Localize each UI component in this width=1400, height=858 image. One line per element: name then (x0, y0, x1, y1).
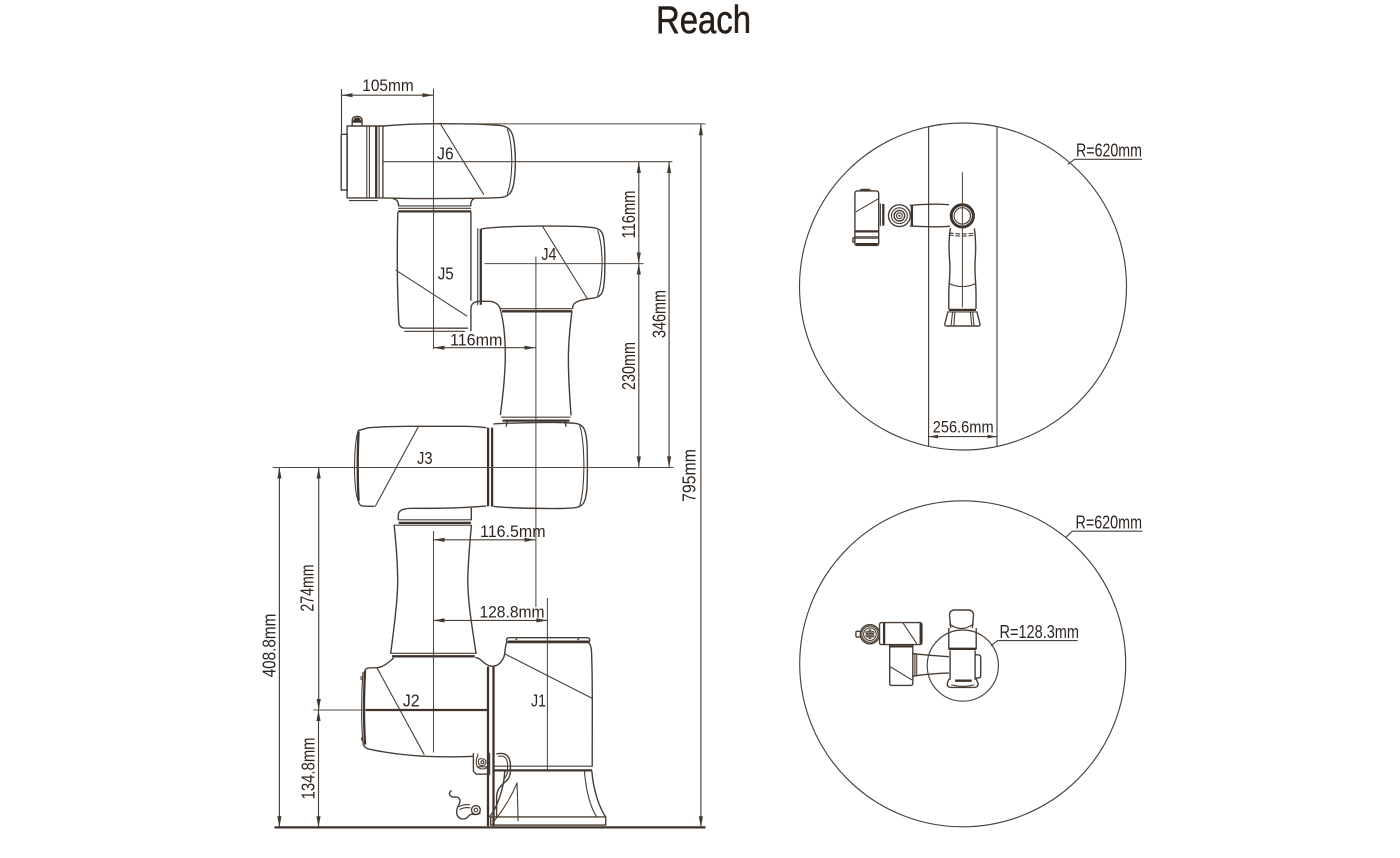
svg-text:274mm: 274mm (298, 564, 318, 611)
svg-text:105mm: 105mm (362, 76, 414, 95)
svg-text:J3: J3 (417, 448, 433, 468)
svg-text:J1: J1 (531, 690, 546, 710)
svg-text:J2: J2 (403, 690, 420, 710)
svg-text:346mm: 346mm (650, 290, 670, 338)
svg-text:R=128.3mm: R=128.3mm (1000, 622, 1080, 642)
svg-text:134.8mm: 134.8mm (299, 737, 319, 799)
svg-text:408.8mm: 408.8mm (260, 614, 280, 678)
svg-text:116.5mm: 116.5mm (480, 522, 546, 541)
svg-text:230mm: 230mm (619, 342, 639, 390)
svg-text:256.6mm: 256.6mm (933, 418, 994, 437)
svg-text:795mm: 795mm (679, 449, 699, 502)
svg-text:J5: J5 (438, 264, 454, 284)
svg-text:R=620mm: R=620mm (1076, 141, 1142, 161)
svg-text:116mm: 116mm (619, 191, 639, 239)
svg-text:J6: J6 (437, 143, 454, 163)
svg-text:R=620mm: R=620mm (1076, 513, 1143, 533)
svg-text:Reach: Reach (656, 0, 751, 42)
svg-text:128.8mm: 128.8mm (479, 602, 544, 621)
svg-text:116mm: 116mm (450, 330, 503, 349)
svg-text:J4: J4 (541, 244, 556, 264)
